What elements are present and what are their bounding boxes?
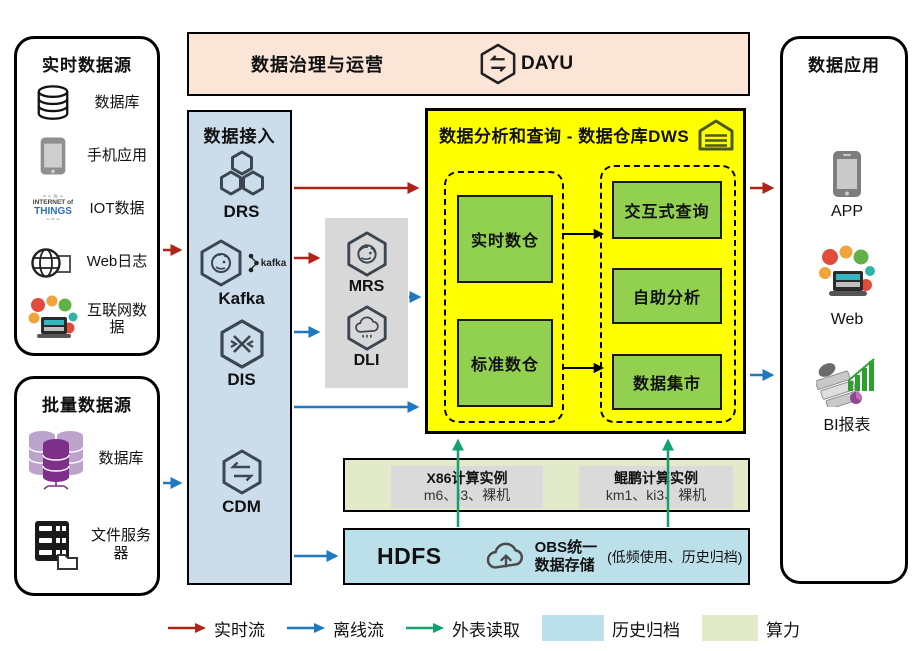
kunpeng-instance: 鲲鹏计算实例 km1、ki3、裸机 [579,466,733,508]
list-item: 数据库 [17,76,157,129]
list-item: 互联网数据 [17,288,157,350]
legend: 实时流 离线流 外表读取 历史归档 算力 [168,612,868,644]
dli-icon [325,304,408,352]
kafka-icon: kafka [189,238,294,288]
app-phone-icon [783,149,911,199]
obs-label: OBS统一 数据存储 [535,539,598,575]
file-server-icon [23,519,89,571]
applications-box: 数据应用 APP Web [780,36,908,584]
applications-title: 数据应用 [783,51,905,76]
web-collage-icon [783,245,911,303]
governance-title: 数据治理与运营 [251,51,384,77]
cdm-label: CDM [189,497,294,517]
list-item: Web日志 [17,235,157,288]
ingestion-title: 数据接入 [189,122,290,147]
internet-collage-icon [25,295,81,343]
kunpeng-subtitle: km1、ki3、裸机 [579,487,733,505]
realtime-sources-title: 实时数据源 [17,51,157,76]
batch-sources-box: 批量数据源 [14,376,160,596]
source-label: 数据库 [89,450,153,468]
x86-title: X86计算实例 [391,470,543,488]
module-interactive-query: 交互式查询 [612,181,722,239]
processing-box: MRS DLI [325,218,408,388]
realtime-arrow-icon [168,621,206,635]
dis-icon [189,318,294,370]
external-arrow-icon [406,621,444,635]
source-label: 手机应用 [81,147,153,164]
bi-label: BI报表 [783,411,911,435]
list-item: 文件服务器 [17,502,157,588]
legend-compute-label: 算力 [766,616,800,641]
kunpeng-title: 鲲鹏计算实例 [579,470,733,488]
dli-label: DLI [325,352,408,370]
dayu-label: DAYU [521,53,573,75]
database-icon [25,83,81,123]
architecture-diagram: 实时数据源 数据库 手机应用 [0,0,914,651]
source-label: 互联网数据 [81,302,153,337]
realtime-sources-box: 实时数据源 数据库 手机应用 [14,36,160,356]
source-label: IOT数据 [81,200,153,217]
module-realtime-warehouse: 实时数仓 [457,195,553,283]
batch-sources-title: 批量数据源 [17,391,157,416]
governance-banner: 数据治理与运营 DAYU [187,32,750,96]
module-standard-warehouse: 标准数仓 [457,319,553,407]
iot-wordcloud-icon: ≈ ⌁ ≋ ⌁ INTERNET of THINGS ⌁ ≈ ⌁ [25,194,81,224]
storage-box: HDFS OBS统一 数据存储 (低频使用、历史归档) [343,528,750,585]
dis-label: DIS [189,370,294,390]
source-label: 文件服务器 [89,527,153,563]
cloud-upload-icon [482,539,530,575]
source-label: Web日志 [81,253,153,270]
x86-instance: X86计算实例 m6、i3、裸机 [391,466,543,508]
legend-realtime-label: 实时流 [214,616,265,641]
dws-title: 数据分析和查询 - 数据仓库DWS [439,118,689,147]
list-item: 数据库 [17,416,157,502]
kafka-logo: kafka [247,252,287,274]
warehouse-icon [697,118,735,152]
module-data-mart: 数据集市 [612,354,722,410]
mrs-label: MRS [325,278,408,296]
cdm-icon [189,448,294,496]
database-stack-icon [23,428,89,490]
source-label: 数据库 [81,94,153,111]
dws-box: 数据分析和查询 - 数据仓库DWS 实时数仓 标准数仓 交互式查询 自助分析 数… [425,108,746,434]
offline-arrow-icon [287,621,325,635]
web-log-icon [25,242,81,282]
legend-archive-label: 历史归档 [612,616,680,641]
kafka-label: Kafka [189,289,294,309]
ingestion-column: 数据接入 DRS [187,110,292,585]
hdfs-label: HDFS [377,543,442,570]
app-label: APP [783,203,911,221]
drs-icon [189,148,294,200]
module-selfservice-analysis: 自助分析 [612,268,722,324]
archive-swatch [542,615,604,641]
storage-note: (低频使用、历史归档) [607,547,742,567]
list-item: ≈ ⌁ ≋ ⌁ INTERNET of THINGS ⌁ ≈ ⌁ IOT数据 [17,182,157,235]
dayu-icon [479,43,517,85]
mrs-icon [325,230,408,278]
dayu-group: DAYU [479,43,573,85]
phone-icon [25,135,81,177]
legend-offline-label: 离线流 [333,616,384,641]
bi-report-icon [783,353,911,407]
list-item: 手机应用 [17,129,157,182]
compute-swatch [702,615,758,641]
compute-box: X86计算实例 m6、i3、裸机 鲲鹏计算实例 km1、ki3、裸机 [343,458,750,512]
legend-external-label: 外表读取 [452,616,520,641]
web-label: Web [783,311,911,329]
x86-subtitle: m6、i3、裸机 [391,487,543,505]
drs-label: DRS [189,202,294,222]
